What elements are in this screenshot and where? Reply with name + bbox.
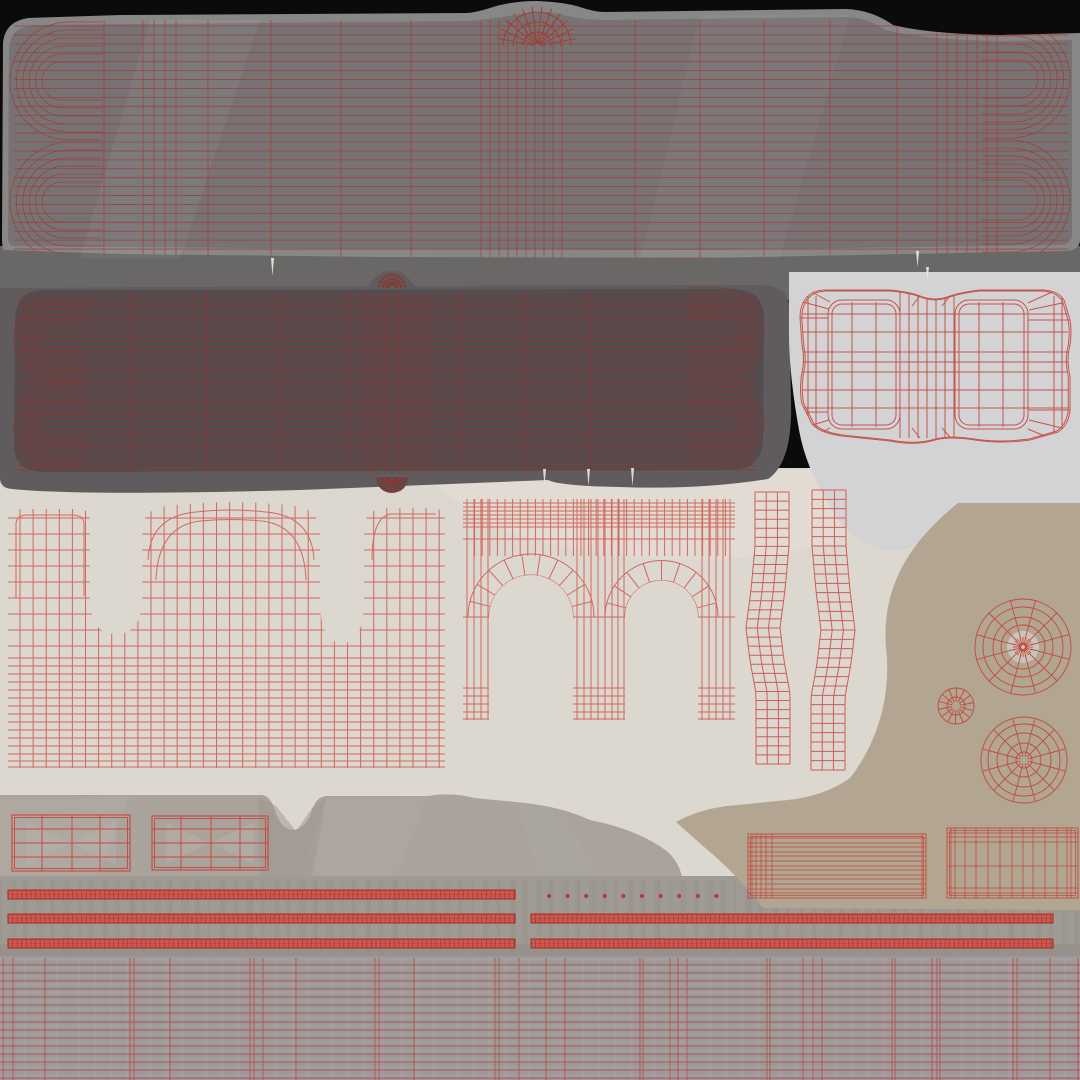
piping-strip-3 — [8, 939, 515, 948]
uv-texture-atlas — [0, 0, 1080, 1080]
piping-strip-4 — [531, 914, 1053, 923]
piping-strip-1 — [8, 890, 515, 899]
uv-atlas-canvas — [0, 0, 1080, 1080]
piping-strip-2 — [8, 914, 515, 923]
piping-strip-5 — [531, 939, 1053, 948]
region-dark-band-inner — [14, 289, 764, 472]
